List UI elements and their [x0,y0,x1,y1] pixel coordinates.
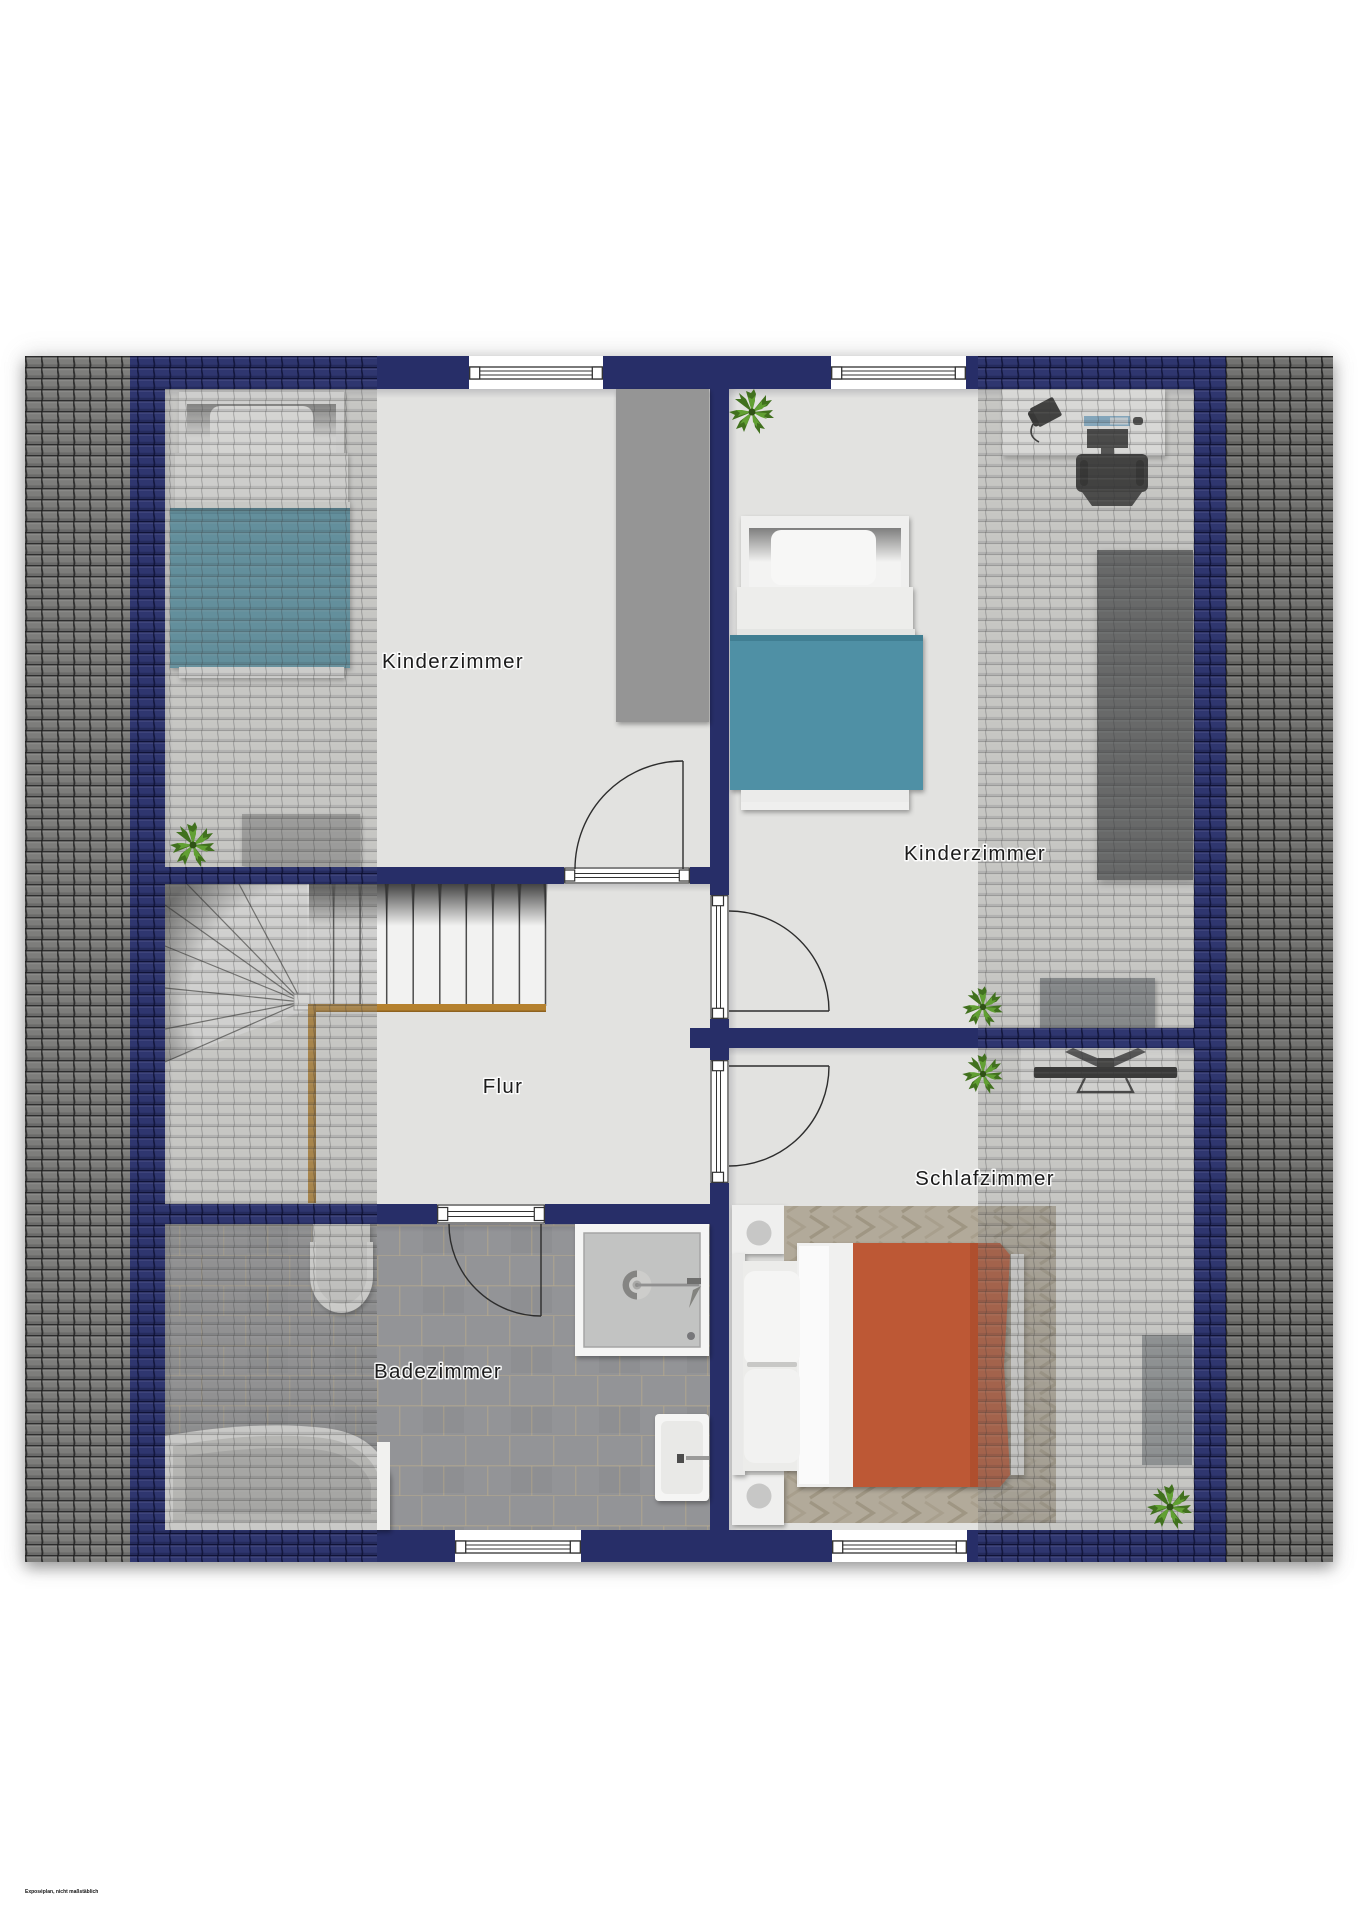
svg-text:Flur: Flur [483,1075,524,1098]
svg-text:Kinderzimmer: Kinderzimmer [382,650,524,673]
svg-text:Kinderzimmer: Kinderzimmer [904,842,1046,865]
svg-text:Schlafzimmer: Schlafzimmer [915,1167,1055,1190]
svg-text:Badezimmer: Badezimmer [374,1360,502,1383]
